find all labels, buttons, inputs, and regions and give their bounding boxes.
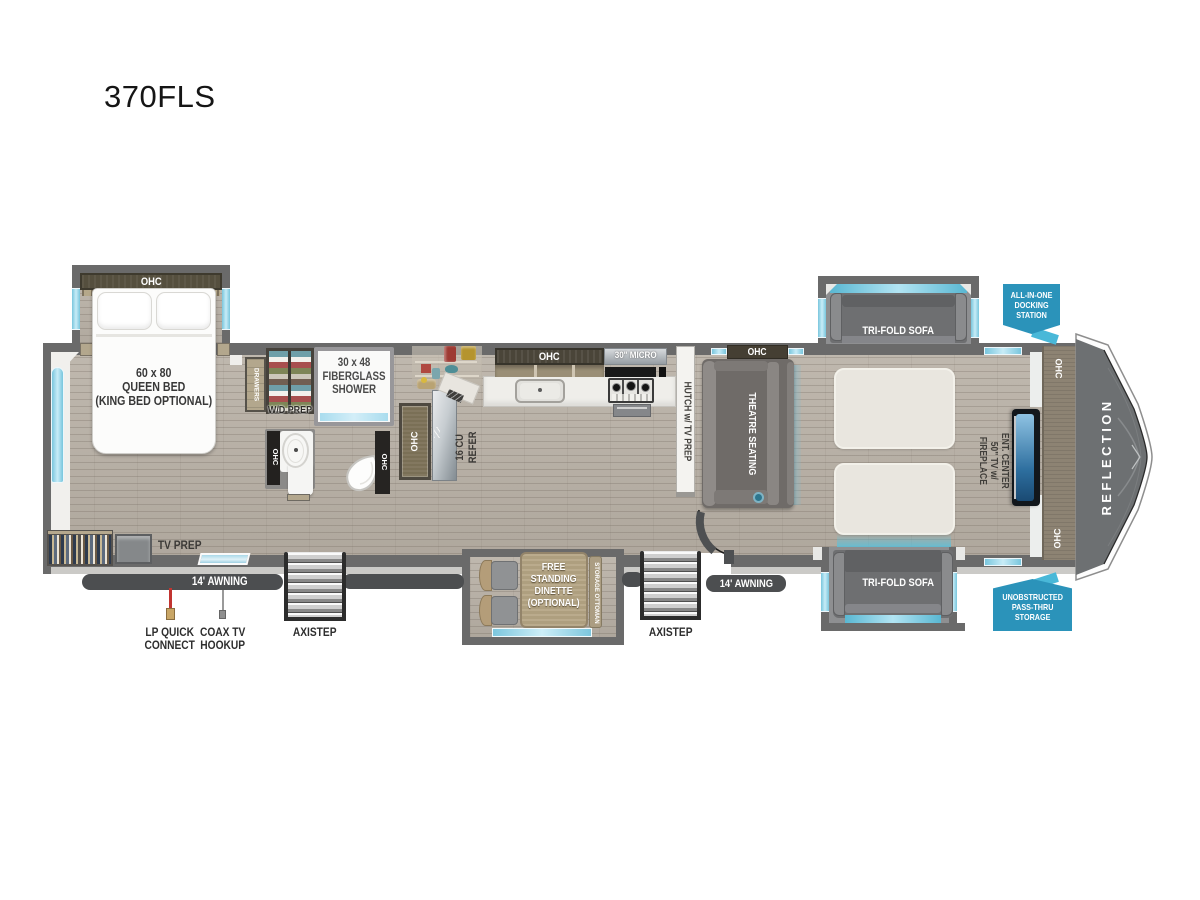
svg-text:REFLECTION: REFLECTION	[1099, 398, 1114, 515]
